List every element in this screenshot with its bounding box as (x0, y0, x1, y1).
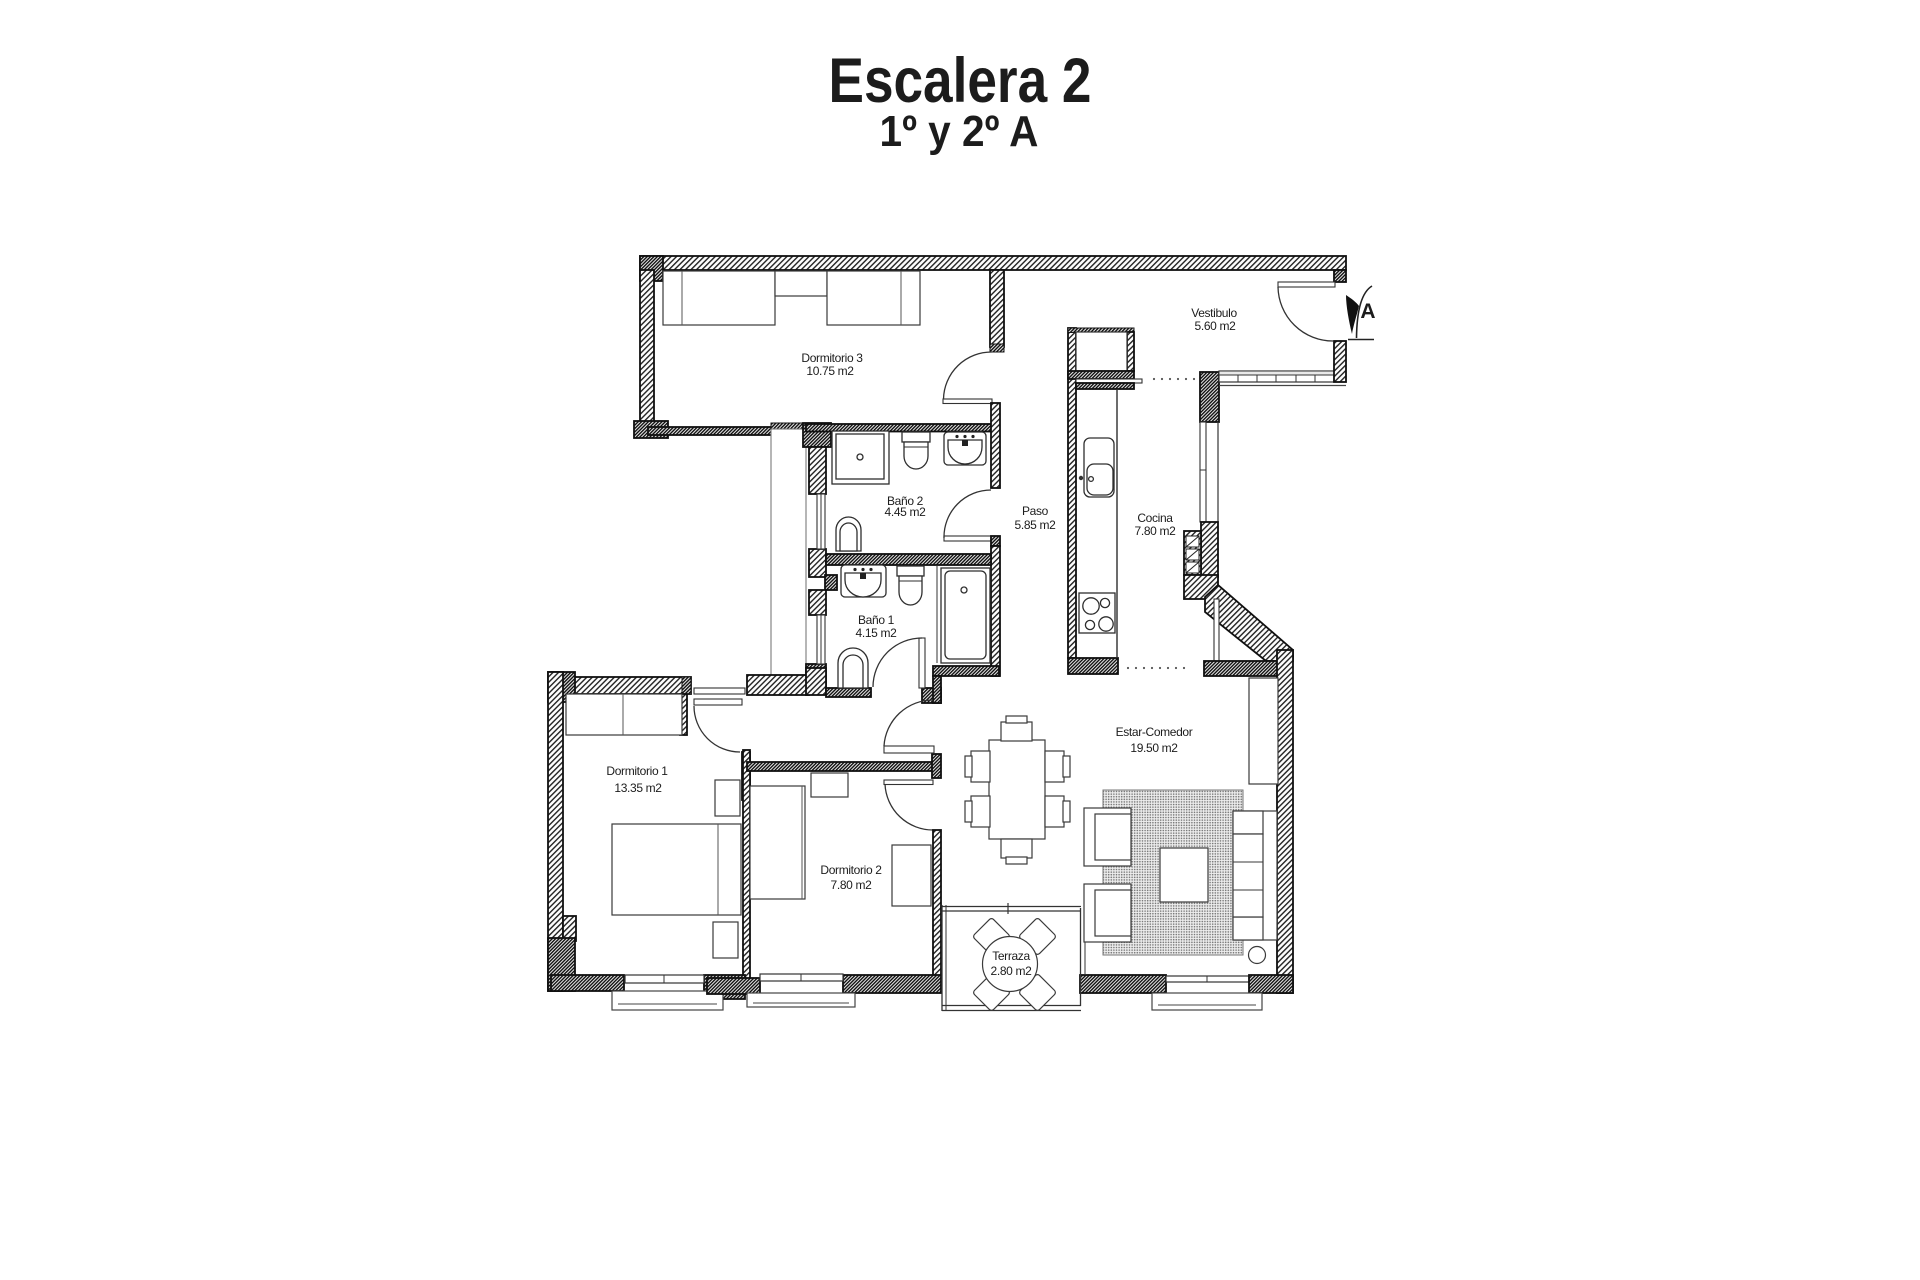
svg-text:7.80 m2: 7.80 m2 (1135, 524, 1177, 538)
svg-text:Baño 1: Baño 1 (858, 613, 895, 627)
svg-text:4.45 m2: 4.45 m2 (885, 505, 927, 519)
svg-text:Terraza: Terraza (992, 949, 1030, 963)
svg-text:Dormitorio 3: Dormitorio 3 (801, 351, 863, 365)
svg-text:10.75 m2: 10.75 m2 (806, 364, 854, 378)
svg-text:Escalera 2: Escalera 2 (829, 46, 1092, 116)
svg-text:Dormitorio 1: Dormitorio 1 (606, 764, 668, 778)
svg-text:2.80 m2: 2.80 m2 (991, 964, 1033, 978)
svg-text:13.35 m2: 13.35 m2 (614, 781, 662, 795)
svg-text:19.50 m2: 19.50 m2 (1130, 741, 1178, 755)
svg-text:5.85 m2: 5.85 m2 (1015, 518, 1057, 532)
svg-text:Paso: Paso (1022, 504, 1049, 518)
svg-text:Cocina: Cocina (1137, 511, 1173, 525)
svg-text:4.15 m2: 4.15 m2 (856, 626, 898, 640)
svg-text:Estar-Comedor: Estar-Comedor (1116, 725, 1193, 739)
svg-text:A: A (1360, 300, 1375, 323)
svg-text:7.80 m2: 7.80 m2 (831, 878, 873, 892)
svg-text:5.60 m2: 5.60 m2 (1195, 319, 1237, 333)
svg-text:Dormitorio 2: Dormitorio 2 (820, 863, 882, 877)
svg-text:Vestibulo: Vestibulo (1191, 306, 1237, 320)
svg-text:1º y 2º A: 1º y 2º A (880, 107, 1039, 156)
